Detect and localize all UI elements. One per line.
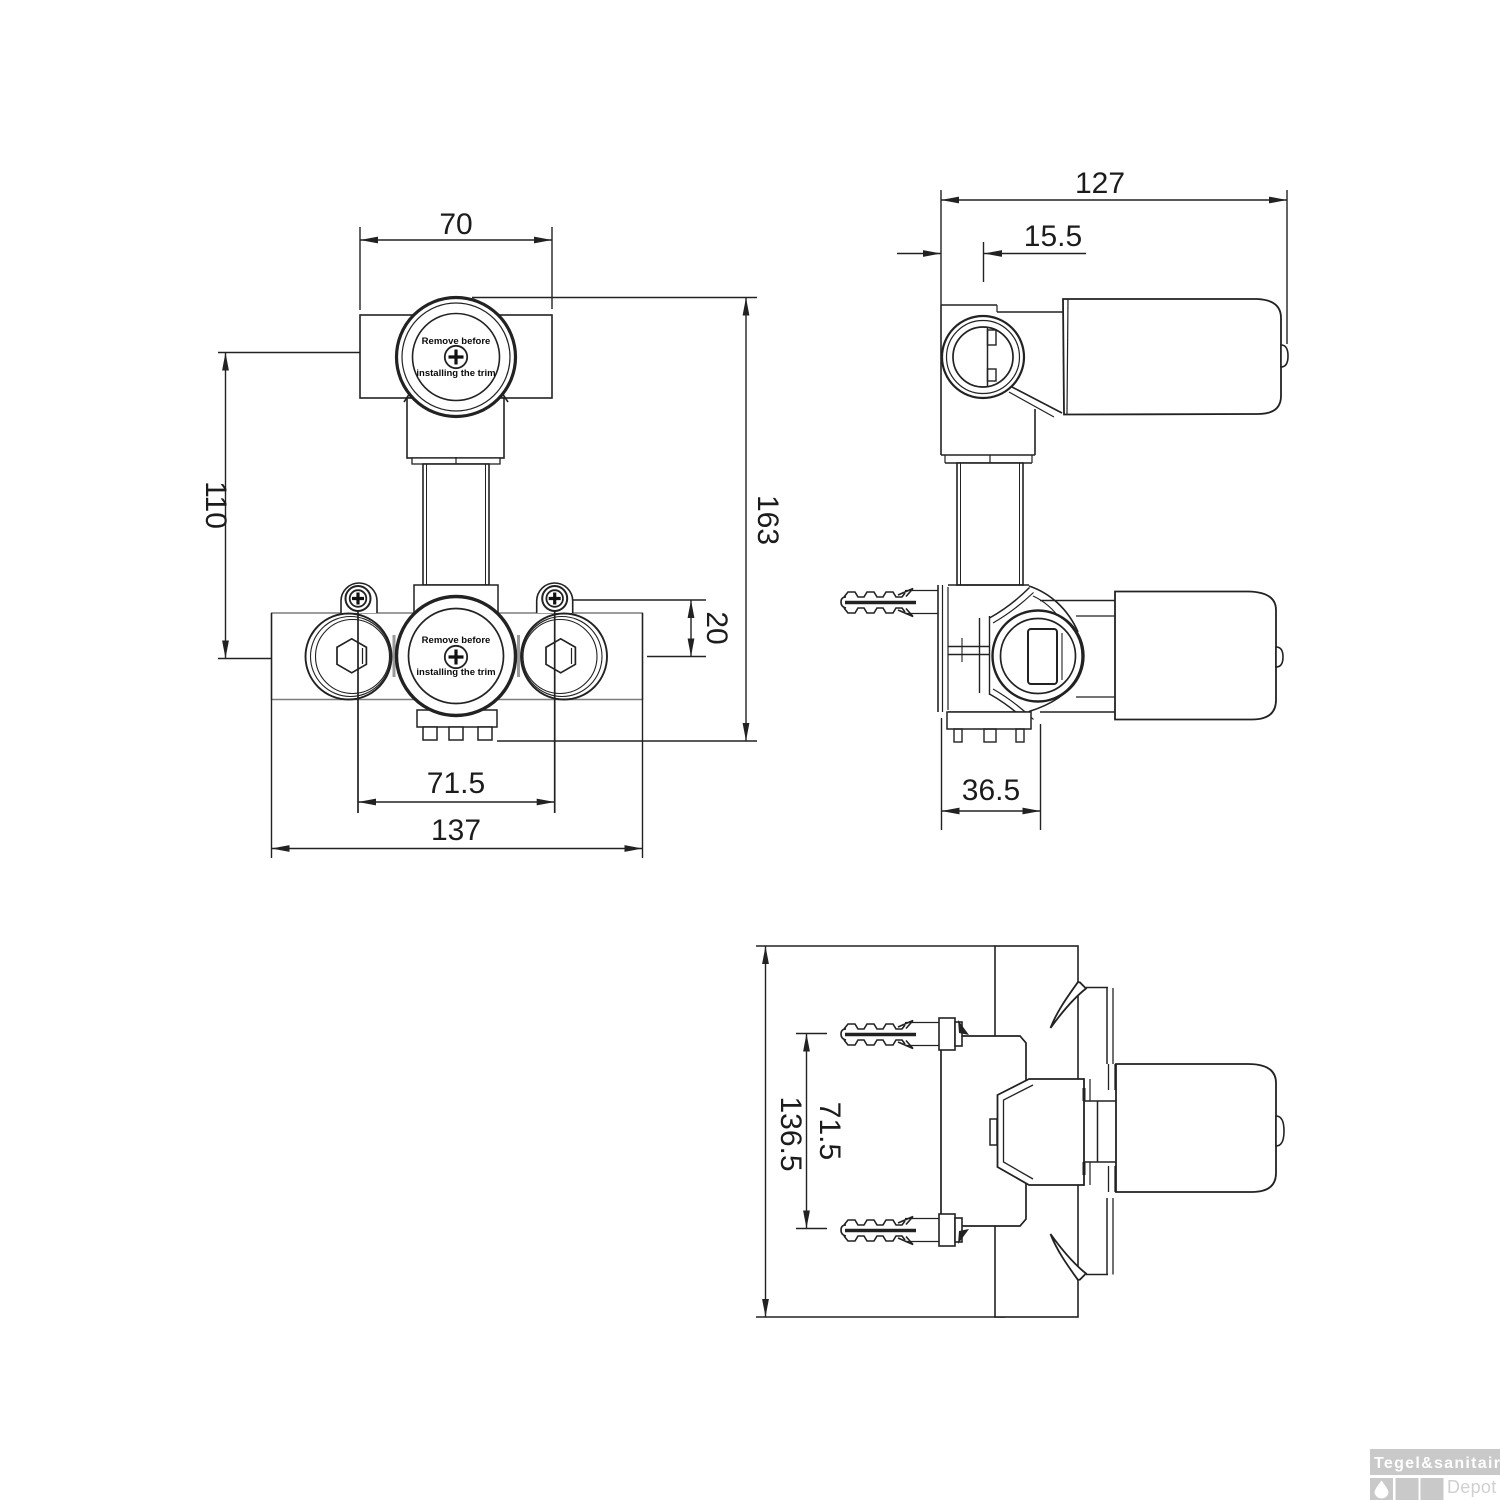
svg-text:163: 163 — [751, 495, 784, 545]
svg-text:71.5: 71.5 — [813, 1102, 846, 1160]
svg-text:15.5: 15.5 — [1024, 220, 1082, 253]
svg-text:137: 137 — [431, 814, 481, 847]
svg-text:Remove before: Remove before — [422, 635, 491, 646]
svg-text:36.5: 36.5 — [962, 774, 1020, 807]
svg-text:136.5: 136.5 — [774, 1096, 807, 1171]
svg-text:installing the trim: installing the trim — [416, 368, 495, 379]
svg-text:20: 20 — [700, 611, 733, 644]
svg-text:Tegel&sanitair: Tegel&sanitair — [1374, 1455, 1500, 1472]
svg-text:127: 127 — [1075, 167, 1125, 200]
svg-text:110: 110 — [199, 481, 232, 529]
svg-text:70: 70 — [439, 208, 472, 241]
svg-text:Depot: Depot — [1447, 1477, 1497, 1497]
svg-text:71.5: 71.5 — [427, 767, 485, 800]
